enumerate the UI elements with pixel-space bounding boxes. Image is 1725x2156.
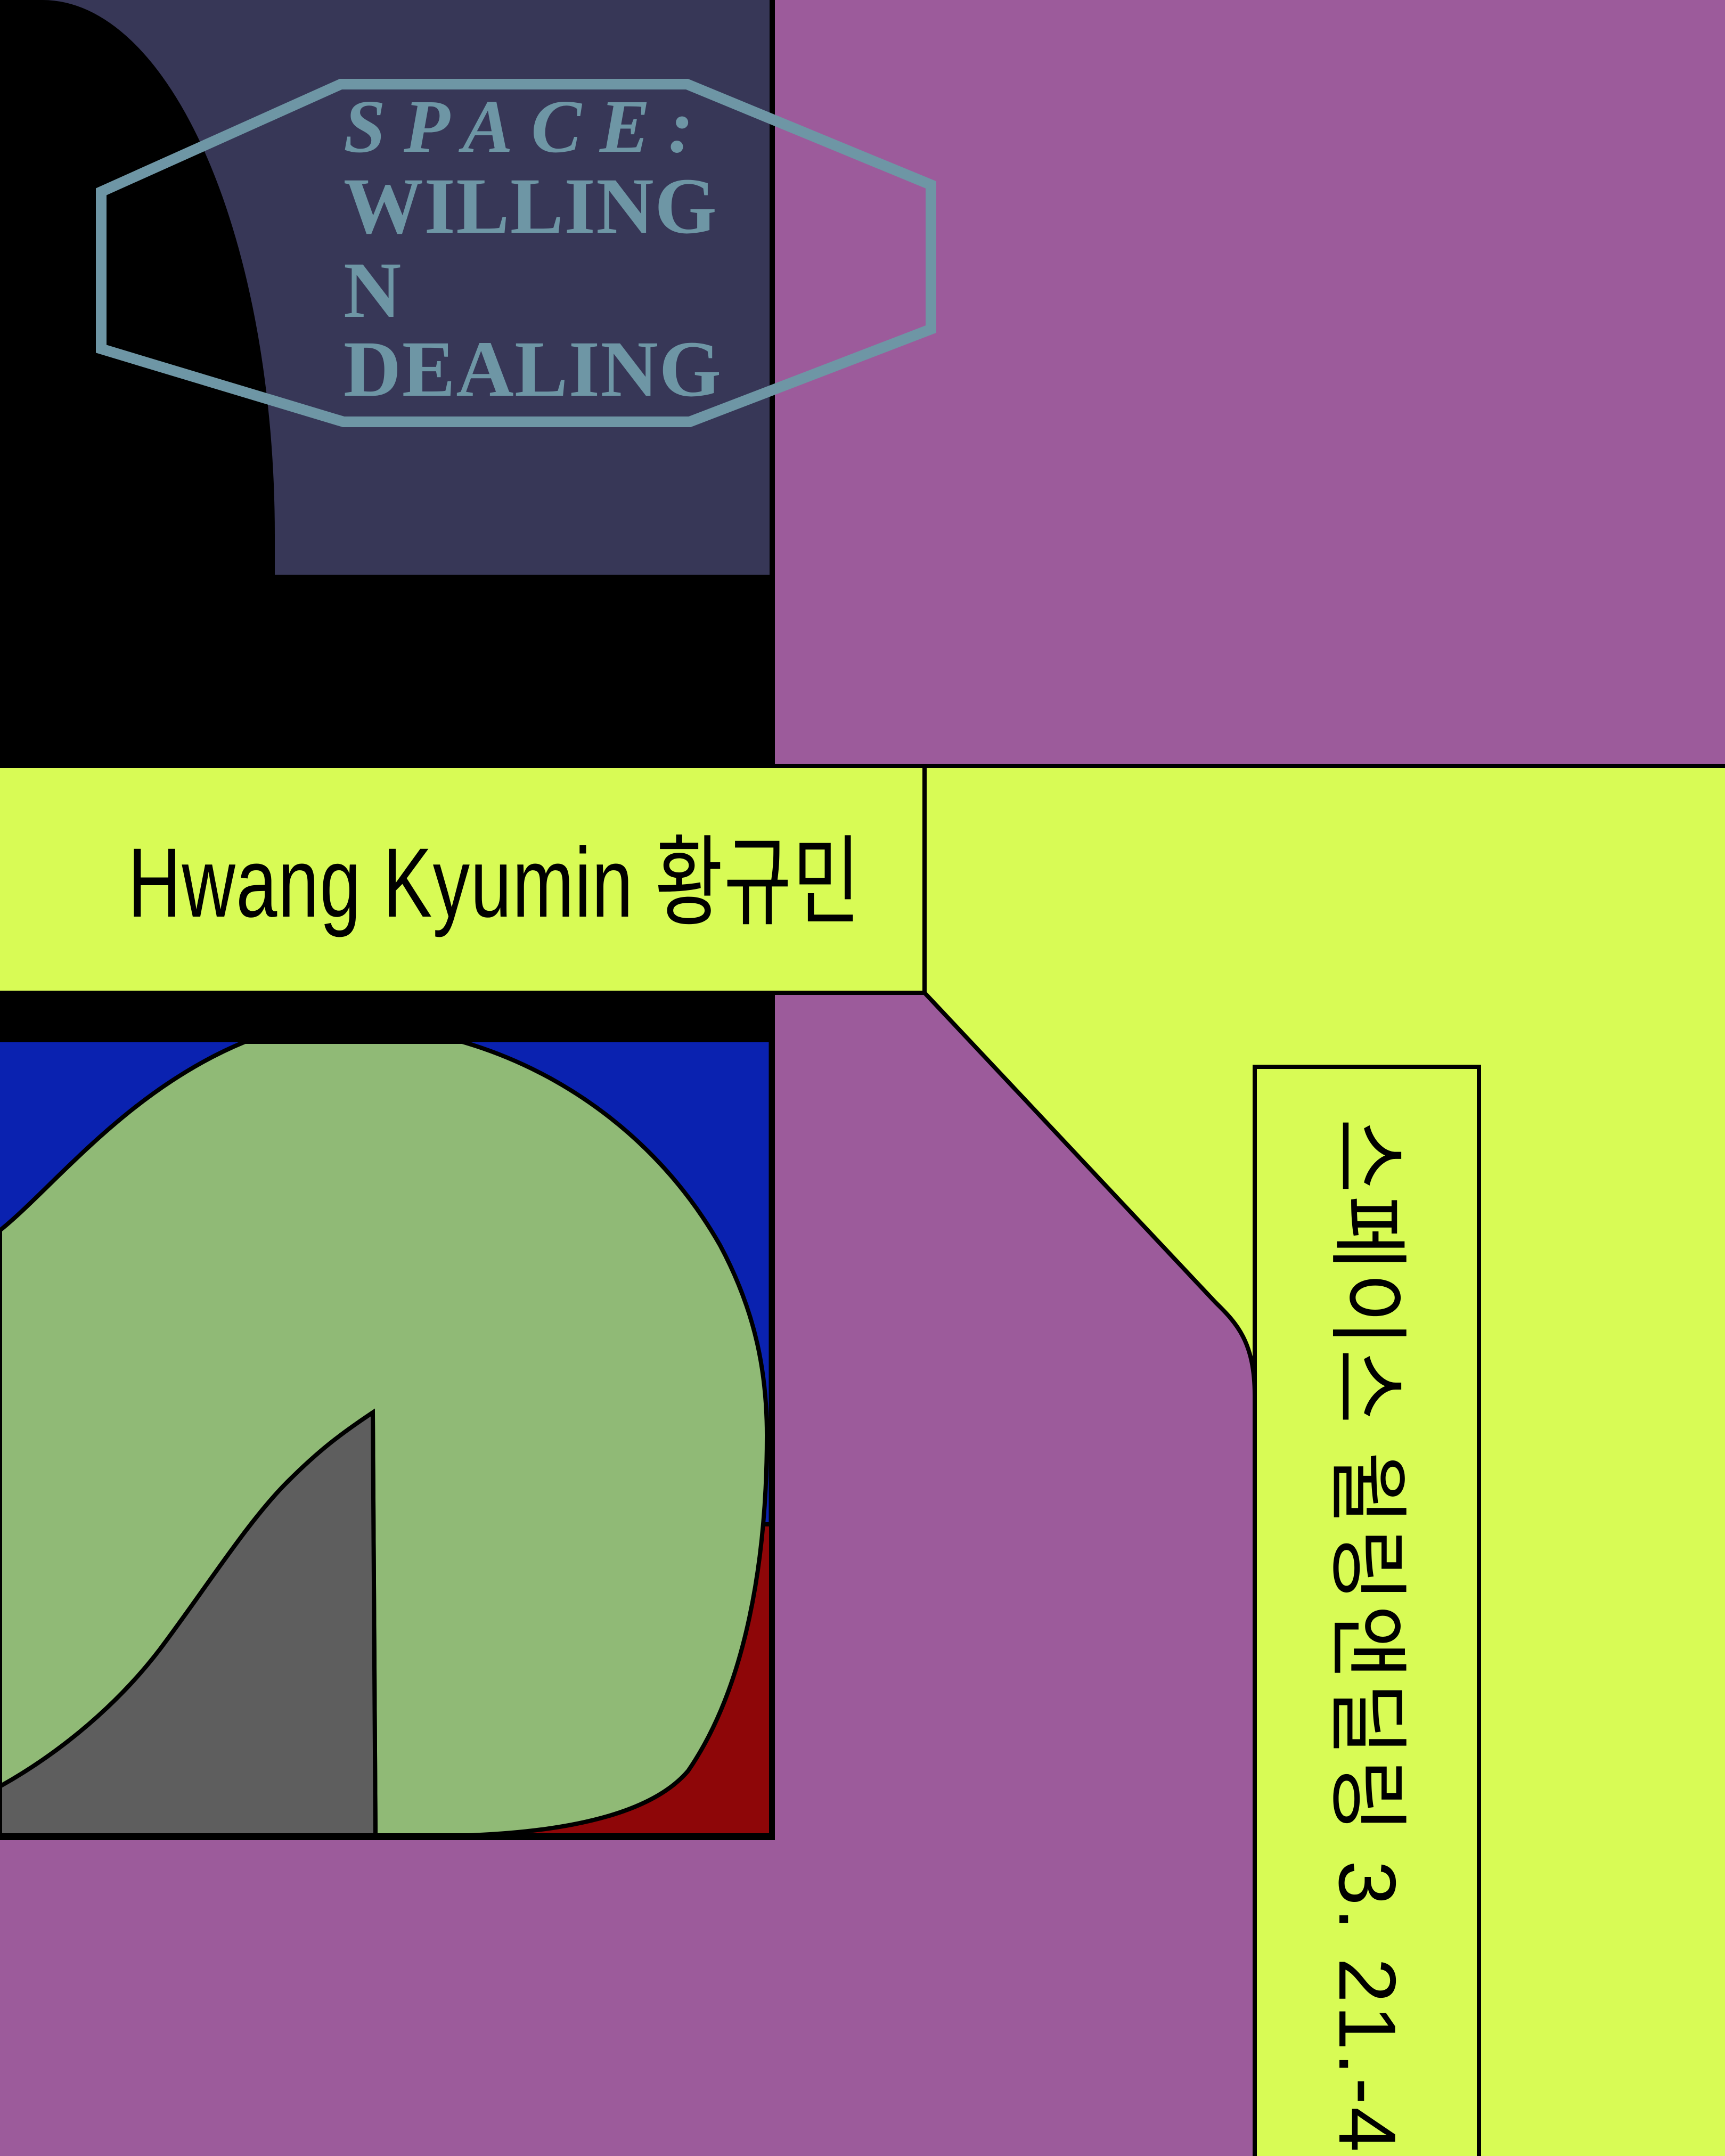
- venue-dates-vertical-text: 스페이스 윌링앤딜링 3. 21.-4. 18.: [1327, 1118, 1408, 2156]
- poster-graphics: [0, 0, 1725, 2156]
- logo-line-willing: WILLING: [344, 166, 717, 246]
- exhibition-poster: SPACE: WILLING N DEALING Hwang Kyumin 황규…: [0, 0, 1725, 2156]
- logo-line-dealing: DEALING: [344, 329, 722, 409]
- artist-name: Hwang Kyumin 황규민: [128, 834, 861, 933]
- logo-line-n: N: [344, 250, 402, 330]
- logo-line-space: SPACE:: [344, 88, 712, 164]
